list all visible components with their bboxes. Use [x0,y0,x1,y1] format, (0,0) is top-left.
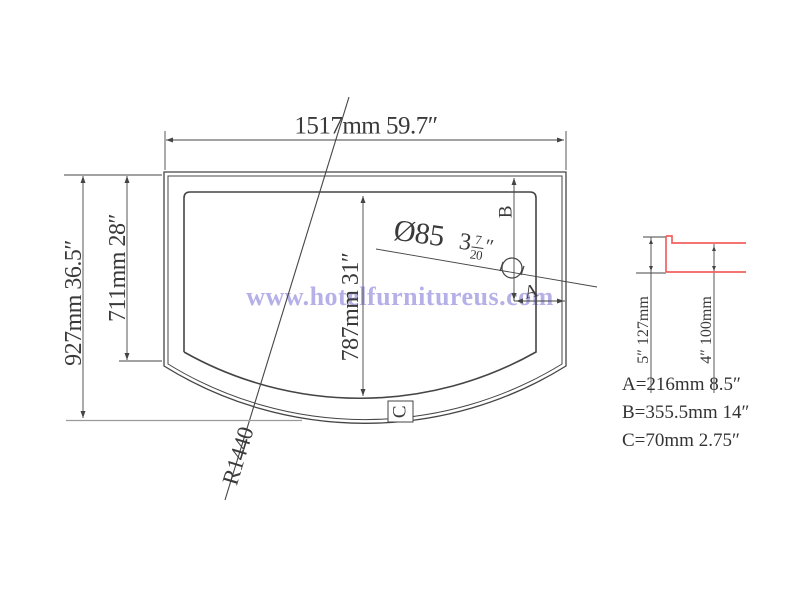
legend-a: A=216mm 8.5″ [622,371,749,399]
section-outer-height-label: 5″ 127mm [636,296,652,364]
width-dimension-label: 1517mm 59.7″ [294,114,437,139]
inner-height-dimension-label: 711mm 28″ [106,214,130,322]
dimension-lines [64,97,597,500]
drain-diameter-mm: Ø85 [392,216,446,253]
shower-tray-technical-drawing: www.hotelfurnitureus.com [0,0,800,600]
drain-circle [500,258,524,278]
legend-c: C=70mm 2.75″ [622,427,749,455]
dimension-legend: A=216mm 8.5″ B=355.5mm 14″ C=70mm 2.75″ [622,371,749,455]
section-profile [666,236,746,272]
outer-height-dimension-label: 927mm 36.5″ [62,240,86,366]
basin-length-dimension-label: 787mm 31″ [339,253,363,362]
point-c-label: C [391,406,410,418]
point-b-label: B [497,206,516,218]
drain-diameter-fraction: 7 20 [469,232,485,262]
section-inner-height-label: 4″ 100mm [699,296,715,364]
legend-b: B=355.5mm 14″ [622,399,749,427]
dimension-arrowheads [81,138,717,419]
